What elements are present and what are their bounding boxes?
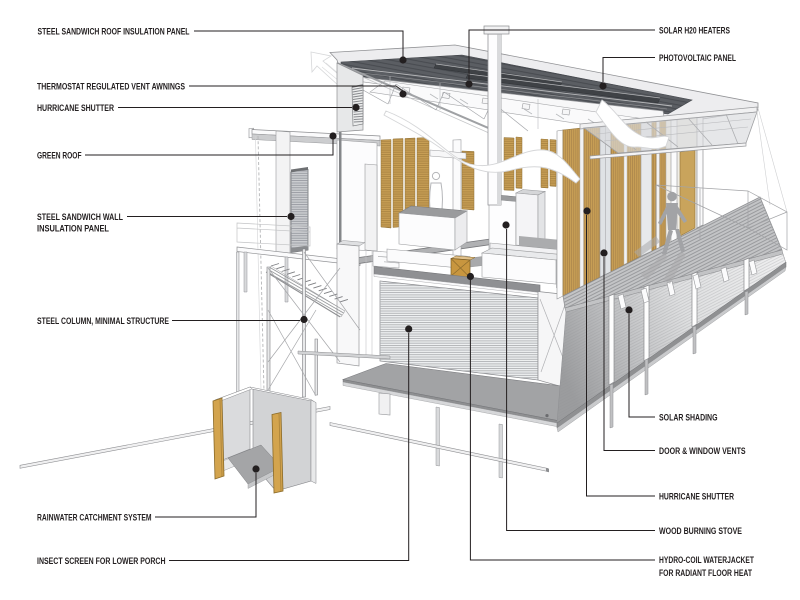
svg-text:STEEL SANDWICH ROOF INSULATION: STEEL SANDWICH ROOF INSULATION PANEL — [38, 26, 190, 37]
svg-text:STEEL SANDWICH WALL: STEEL SANDWICH WALL — [37, 212, 123, 223]
svg-text:HURRICANE SHUTTER: HURRICANE SHUTTER — [659, 491, 734, 502]
svg-text:PHOTOVOLTAIC PANEL: PHOTOVOLTAIC PANEL — [659, 53, 736, 64]
svg-text:DOOR & WINDOW VENTS: DOOR & WINDOW VENTS — [659, 446, 746, 457]
svg-text:INSULATION PANEL: INSULATION PANEL — [37, 223, 109, 234]
svg-text:SOLAR SHADING: SOLAR SHADING — [659, 412, 718, 423]
svg-text:GREEN ROOF: GREEN ROOF — [37, 150, 82, 161]
svg-text:HURRICANE SHUTTER: HURRICANE SHUTTER — [37, 103, 114, 114]
svg-text:THERMOSTAT REGULATED VENT AWNI: THERMOSTAT REGULATED VENT AWNINGS — [37, 81, 185, 92]
svg-text:STEEL COLUMN, MINIMAL STRUCTUR: STEEL COLUMN, MINIMAL STRUCTURE — [37, 316, 169, 327]
svg-text:SOLAR H20 HEATERS: SOLAR H20 HEATERS — [659, 25, 730, 36]
svg-text:FOR RADIANT FLOOR HEAT: FOR RADIANT FLOOR HEAT — [659, 568, 752, 579]
svg-text:INSECT SCREEN FOR LOWER PORCH: INSECT SCREEN FOR LOWER PORCH — [37, 556, 166, 567]
svg-text:HYDRO-COIL WATERJACKET: HYDRO-COIL WATERJACKET — [659, 555, 754, 566]
svg-text:RAINWATER CATCHMENT SYSTEM: RAINWATER CATCHMENT SYSTEM — [37, 512, 152, 523]
svg-text:WOOD BURNING STOVE: WOOD BURNING STOVE — [659, 526, 742, 537]
